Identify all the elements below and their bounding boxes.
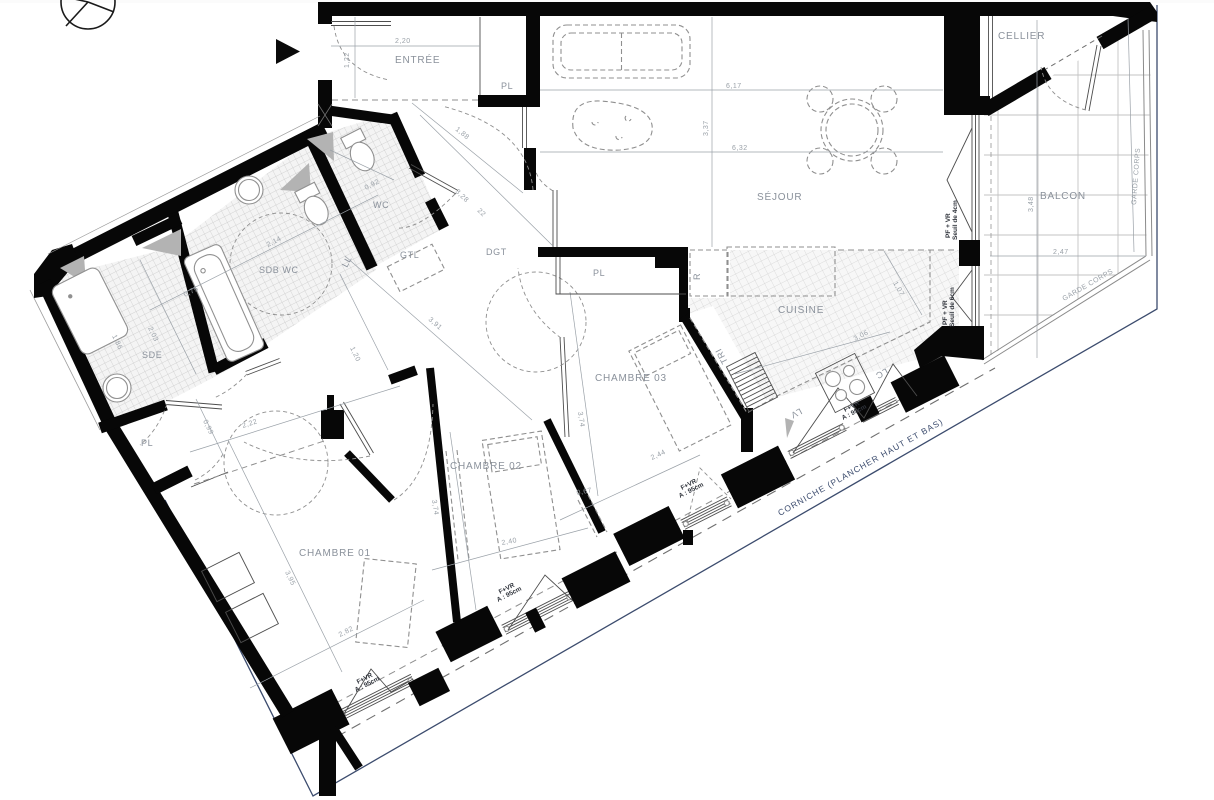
svg-text:2,47: 2,47 (1053, 249, 1069, 256)
svg-text:PL: PL (141, 438, 153, 448)
svg-text:3,48: 3,48 (1028, 196, 1035, 212)
svg-text:SÉJOUR: SÉJOUR (757, 190, 802, 203)
svg-text:CELLIER: CELLIER (998, 31, 1045, 42)
svg-text:SDE: SDE (142, 350, 162, 360)
svg-text:PL: PL (501, 81, 513, 91)
svg-text:Seuil de 4cm: Seuil de 4cm (952, 200, 959, 240)
svg-text:CHAMBRE 03: CHAMBRE 03 (595, 373, 667, 384)
svg-text:ENTRÉE: ENTRÉE (395, 53, 440, 66)
svg-text:Seuil de 6cm: Seuil de 6cm (949, 287, 956, 327)
svg-text:PF + VR: PF + VR (945, 213, 952, 238)
svg-text:DGT: DGT (486, 247, 507, 257)
svg-text:1,22: 1,22 (344, 52, 351, 68)
svg-text:6,32: 6,32 (732, 145, 748, 152)
svg-text:6,17: 6,17 (726, 83, 742, 90)
svg-text:WC: WC (373, 200, 389, 210)
svg-text:SDB WC: SDB WC (259, 265, 299, 275)
svg-text:3,37: 3,37 (703, 120, 710, 136)
svg-text:CHAMBRE 02: CHAMBRE 02 (450, 461, 522, 472)
svg-text:CUISINE: CUISINE (778, 305, 824, 316)
svg-text:CHAMBRE 01: CHAMBRE 01 (299, 548, 371, 559)
svg-text:2,20: 2,20 (395, 38, 411, 45)
svg-text:PL: PL (593, 268, 605, 278)
svg-text:PF + VR: PF + VR (942, 300, 949, 325)
svg-text:GTL: GTL (400, 250, 419, 260)
svg-text:R: R (692, 273, 702, 280)
svg-text:BALCON: BALCON (1040, 191, 1086, 202)
